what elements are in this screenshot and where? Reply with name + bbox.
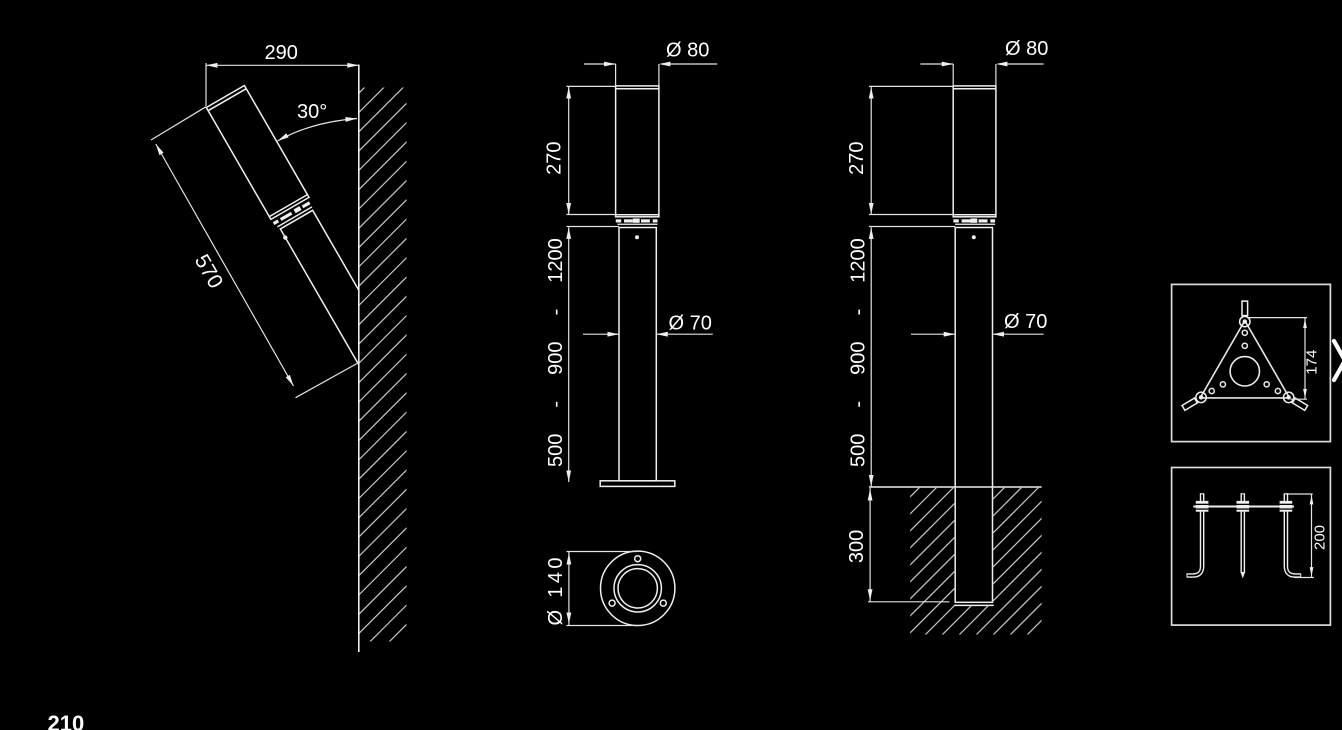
svg-text:300: 300	[846, 530, 868, 563]
svg-text:210: 210	[48, 711, 85, 730]
svg-text:270: 270	[544, 142, 566, 175]
svg-text:Ø 80: Ø 80	[1005, 38, 1048, 60]
svg-text:500 - 900 - 1200: 500 - 900 - 1200	[545, 238, 567, 467]
svg-text:Ø 140: Ø 140	[545, 558, 567, 626]
svg-text:270: 270	[846, 142, 868, 175]
svg-text:Ø 80: Ø 80	[666, 40, 709, 62]
svg-text:500 - 900 - 1200: 500 - 900 - 1200	[848, 238, 870, 467]
svg-text:30°: 30°	[297, 101, 327, 123]
svg-text:Ø 70: Ø 70	[669, 313, 712, 335]
svg-text:174: 174	[1304, 350, 1321, 375]
svg-text:Ø 70: Ø 70	[1004, 311, 1047, 333]
svg-text:200: 200	[1312, 525, 1329, 550]
svg-text:290: 290	[265, 42, 298, 64]
